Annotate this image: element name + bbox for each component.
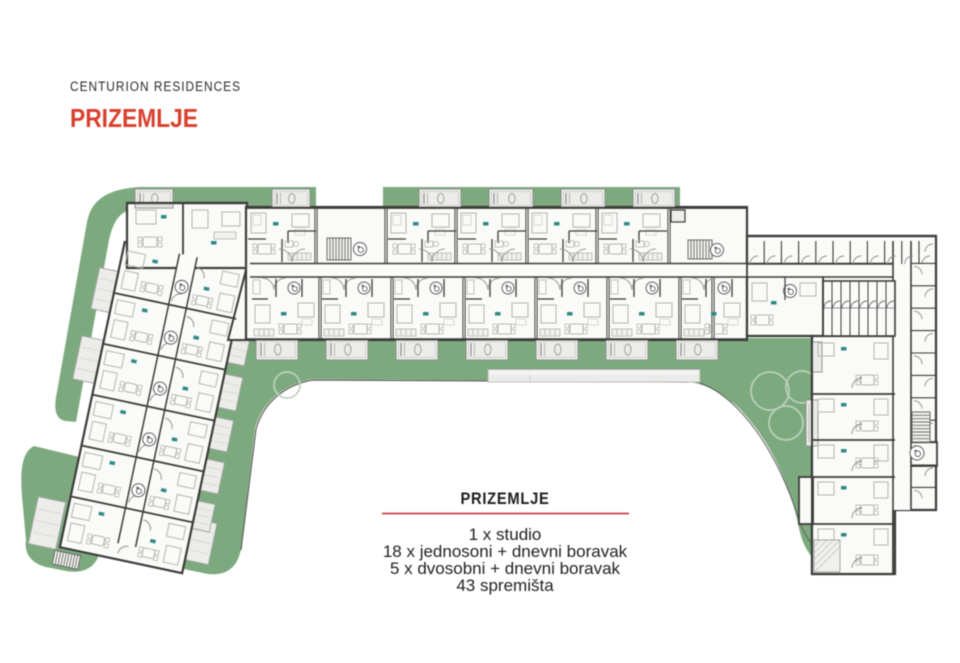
svg-text:PRIZEMLJE: PRIZEMLJE [461, 490, 550, 508]
svg-text:PRIZEMLJE: PRIZEMLJE [70, 103, 198, 133]
svg-text:43 spremišta: 43 spremišta [456, 576, 554, 595]
svg-text:CENTURION RESIDENCES: CENTURION RESIDENCES [70, 79, 241, 94]
